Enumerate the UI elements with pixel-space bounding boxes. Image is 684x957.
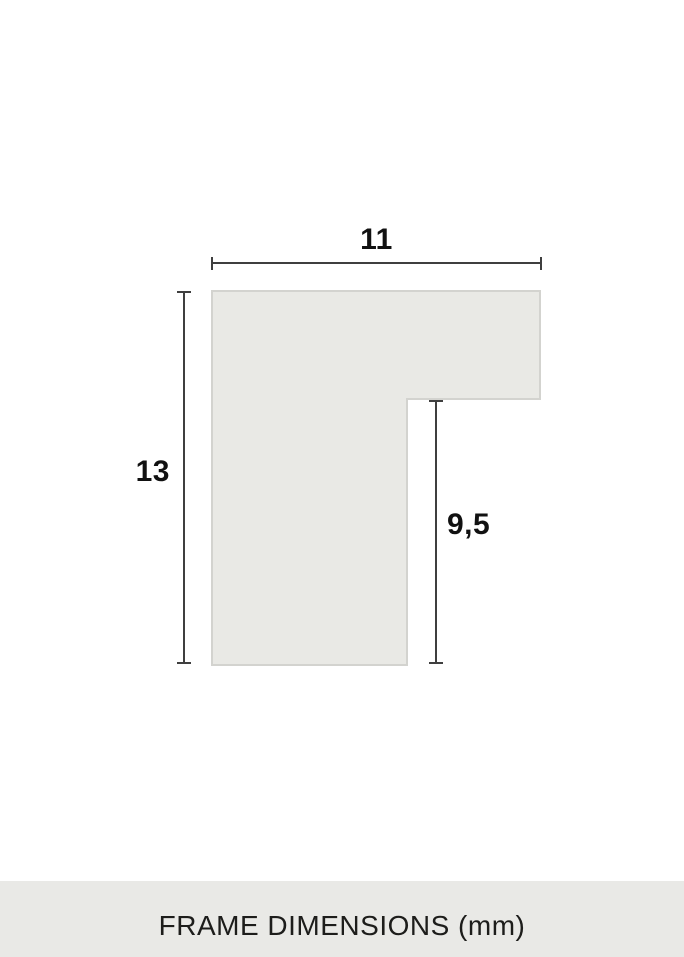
height-dimension-label: 13 [108,455,170,490]
rabbet-dimension-label: 9,5 [447,508,490,543]
width-dimension-label: 11 [212,223,541,258]
rabbet-dimension-line [429,401,443,663]
footer-bar: FRAME DIMENSIONS (mm) [0,881,684,957]
profile-drawing [0,0,684,957]
frame-dimension-diagram: 11 13 9,5 FRAME DIMENSIONS (mm) [0,0,684,957]
height-dimension-line [177,292,191,663]
footer-title: FRAME DIMENSIONS (mm) [159,910,526,942]
frame-profile-shape [212,291,540,665]
width-dimension-line [212,257,541,270]
